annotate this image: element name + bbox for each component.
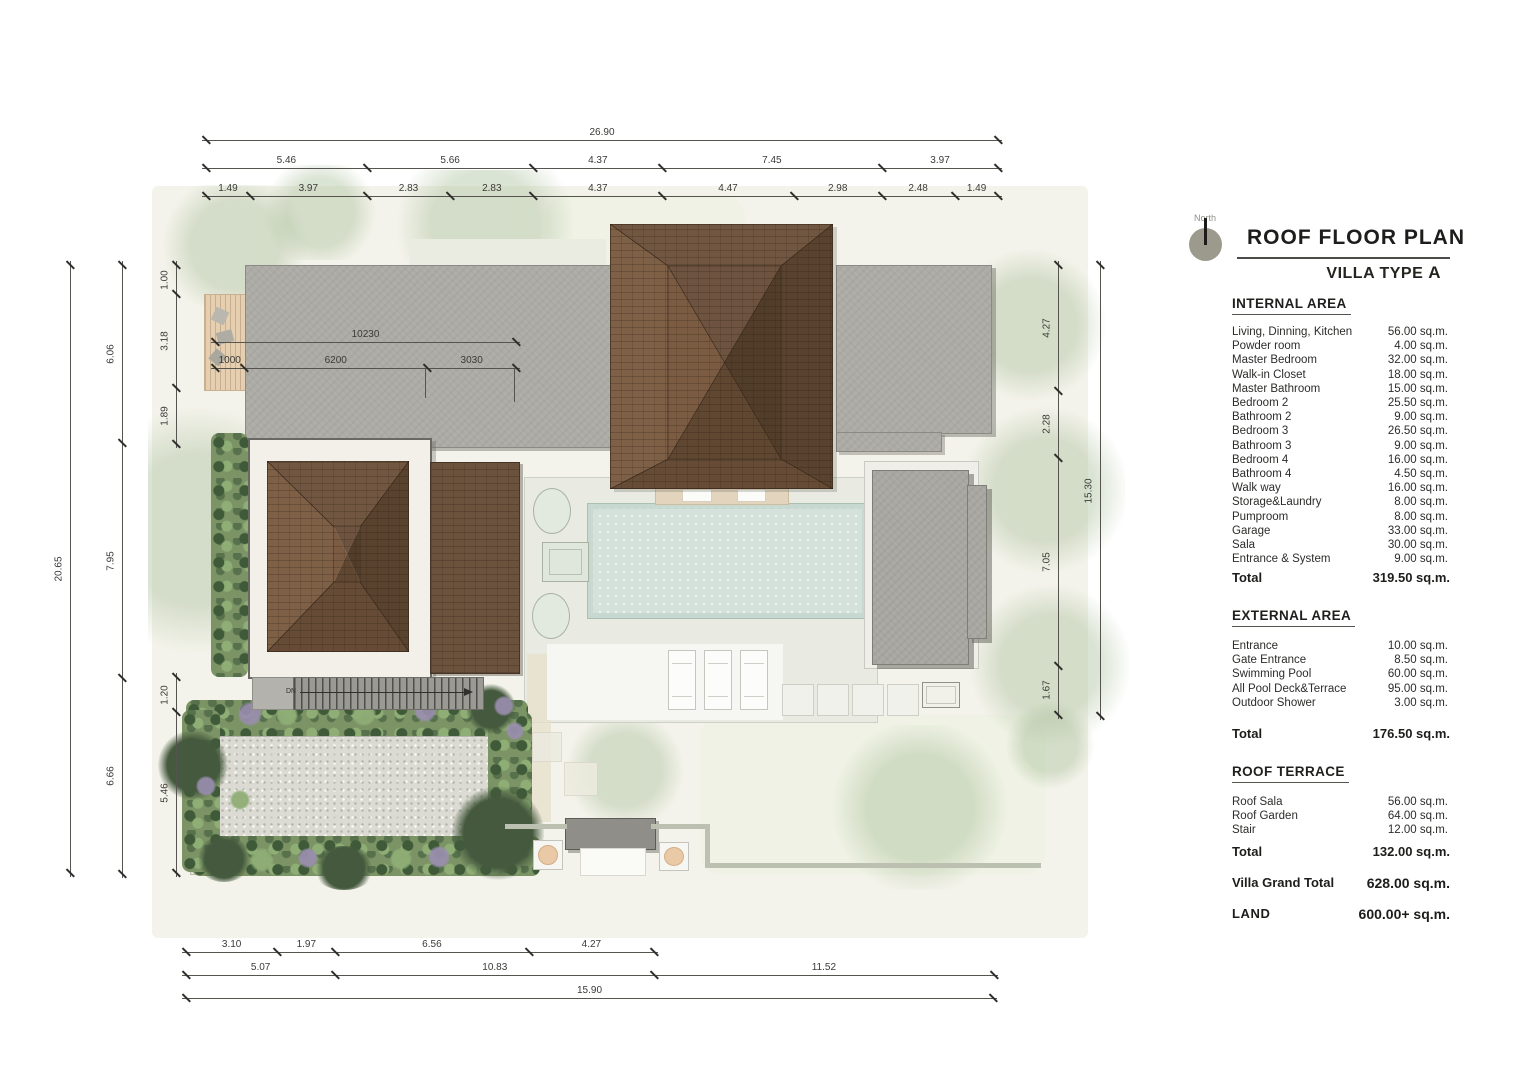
area-row-label: Outdoor Shower — [1232, 696, 1316, 710]
dimension-label: 2.28 — [1042, 415, 1053, 434]
dimension-label: 3.97 — [299, 183, 318, 194]
area-row: Entrance10.00 sq.m. — [1232, 639, 1448, 653]
north-needle-icon — [1204, 218, 1207, 245]
dimension-label: 4.27 — [582, 939, 601, 950]
dimension-line — [1100, 261, 1101, 720]
area-row: Stair12.00 sq.m. — [1232, 823, 1448, 837]
dimension-label: 2.83 — [399, 183, 418, 194]
roof-floor-plan-sheet: DN 26.905.465.664.377.453.971.493.972.83… — [0, 0, 1536, 1086]
dimension-label: 2.48 — [908, 183, 927, 194]
area-row-value: 26.50 sq.m. — [1388, 424, 1448, 438]
area-row-label: Roof Garden — [1232, 809, 1298, 823]
area-row-label: Roof Sala — [1232, 795, 1283, 809]
dimension-label: 10230 — [352, 329, 380, 340]
area-row-value: 56.00 sq.m. — [1388, 325, 1448, 339]
dimension-label: 1.97 — [297, 939, 316, 950]
dimension-line — [211, 368, 520, 369]
dimension-label: 1000 — [219, 355, 241, 366]
area-row-value: 9.00 sq.m. — [1394, 439, 1448, 453]
area-row-label: Stair — [1232, 823, 1256, 837]
dimension-label: 1.00 — [160, 270, 171, 289]
dimension-label: 1.89 — [160, 406, 171, 425]
area-row: Master Bathroom15.00 sq.m. — [1232, 382, 1448, 396]
area-row-value: 10.00 sq.m. — [1388, 639, 1448, 653]
area-row-value: 33.00 sq.m. — [1388, 524, 1448, 538]
area-row-label: Living, Dinning, Kitchen — [1232, 325, 1352, 339]
dimension-label: 2.98 — [828, 183, 847, 194]
dimension-label: 1.67 — [1042, 680, 1053, 699]
area-row-value: 60.00 sq.m. — [1388, 667, 1448, 681]
area-row: Bedroom 225.50 sq.m. — [1232, 396, 1448, 410]
area-row-label: Bathroom 3 — [1232, 439, 1291, 453]
dimension-label: 11.52 — [812, 962, 836, 973]
dimension-label: 7.45 — [762, 155, 781, 166]
external-area-rows: Entrance10.00 sq.m.Gate Entrance8.50 sq.… — [1232, 639, 1448, 710]
area-row: Master Bedroom32.00 sq.m. — [1232, 353, 1448, 367]
dimension-label: 1.49 — [218, 183, 237, 194]
area-row-label: Entrance & System — [1232, 552, 1330, 566]
area-row-value: 56.00 sq.m. — [1388, 795, 1448, 809]
area-row-label: Gate Entrance — [1232, 653, 1306, 667]
area-row-label: Entrance — [1232, 639, 1278, 653]
area-row-value: 16.00 sq.m. — [1388, 481, 1448, 495]
area-row-value: 3.00 sq.m. — [1394, 696, 1448, 710]
internal-area-heading: INTERNAL AREA — [1232, 296, 1351, 315]
area-row-value: 18.00 sq.m. — [1388, 368, 1448, 382]
internal-area-total: Total 319.50 sq.m. — [1232, 570, 1450, 585]
dimension-label: 4.47 — [718, 183, 737, 194]
area-row: Powder room4.00 sq.m. — [1232, 339, 1448, 353]
dimension-line — [176, 673, 177, 877]
dimension-label: 5.07 — [251, 962, 270, 973]
dimension-line — [211, 342, 520, 343]
dimension-label: 6.66 — [106, 766, 117, 785]
roof-terrace-heading: ROOF TERRACE — [1232, 764, 1349, 783]
area-row-label: Sala — [1232, 538, 1255, 552]
roof-terrace-total: Total 132.00 sq.m. — [1232, 844, 1450, 859]
area-row-label: Bedroom 4 — [1232, 453, 1288, 467]
dimension-line — [182, 975, 998, 976]
dimension-label: 3.97 — [930, 155, 949, 166]
dimension-label: 4.37 — [588, 155, 607, 166]
area-row-value: 64.00 sq.m. — [1388, 809, 1448, 823]
dimension-label: 1.49 — [967, 183, 986, 194]
area-row-label: Garage — [1232, 524, 1270, 538]
dimension-label: 7.95 — [106, 551, 117, 570]
area-row-label: Pumproom — [1232, 510, 1288, 524]
area-row: Pumproom8.00 sq.m. — [1232, 510, 1448, 524]
dimension-label: 5.46 — [277, 155, 296, 166]
area-row-label: Powder room — [1232, 339, 1300, 353]
area-row: Entrance & System9.00 sq.m. — [1232, 552, 1448, 566]
total-value: 176.50 sq.m. — [1373, 726, 1450, 741]
villa-type-prefix: VILLA TYPE — [1326, 265, 1428, 282]
dimension-label: 20.65 — [54, 556, 65, 581]
total-label: Total — [1232, 726, 1262, 741]
area-row: Bathroom 44.50 sq.m. — [1232, 467, 1448, 481]
area-row: Garage33.00 sq.m. — [1232, 524, 1448, 538]
area-row-value: 8.00 sq.m. — [1394, 495, 1448, 509]
dimension-label: 3.18 — [160, 332, 171, 351]
area-row-label: Walk way — [1232, 481, 1281, 495]
grand-total-value: 628.00 sq.m. — [1367, 875, 1450, 891]
total-label: Total — [1232, 844, 1262, 859]
area-row-label: Master Bedroom — [1232, 353, 1317, 367]
dimension-line — [182, 998, 997, 999]
dimension-label: 3.10 — [222, 939, 241, 950]
dimension-label: 26.90 — [589, 127, 614, 138]
area-row: Sala30.00 sq.m. — [1232, 538, 1448, 552]
dimension-label: 5.66 — [440, 155, 459, 166]
villa-type-letter: A — [1428, 263, 1441, 282]
dimension-label: 7.05 — [1042, 552, 1053, 571]
dimension-line — [176, 261, 177, 448]
title-underline — [1237, 257, 1450, 259]
land-row: LAND 600.00+ sq.m. — [1232, 906, 1450, 922]
dimension-label: 5.46 — [160, 783, 171, 802]
area-row-value: 4.50 sq.m. — [1394, 467, 1448, 481]
dimension-label: 4.37 — [588, 183, 607, 194]
area-row-label: Master Bathroom — [1232, 382, 1320, 396]
dimension-label: 1.20 — [160, 685, 171, 704]
area-row-value: 8.50 sq.m. — [1394, 653, 1448, 667]
area-row-label: Bedroom 2 — [1232, 396, 1288, 410]
external-area-heading: EXTERNAL AREA — [1232, 608, 1355, 627]
land-label: LAND — [1232, 906, 1271, 922]
area-row: Walk way16.00 sq.m. — [1232, 481, 1448, 495]
area-row: Walk-in Closet18.00 sq.m. — [1232, 368, 1448, 382]
area-row: Roof Garden64.00 sq.m. — [1232, 809, 1448, 823]
area-row: Swimming Pool60.00 sq.m. — [1232, 667, 1448, 681]
area-row: Living, Dinning, Kitchen56.00 sq.m. — [1232, 325, 1448, 339]
dimension-line — [1058, 261, 1059, 719]
area-row: Bathroom 39.00 sq.m. — [1232, 439, 1448, 453]
area-row-value: 16.00 sq.m. — [1388, 453, 1448, 467]
area-row: Bathroom 29.00 sq.m. — [1232, 410, 1448, 424]
area-row-value: 25.50 sq.m. — [1388, 396, 1448, 410]
dimension-label: 15.30 — [1084, 478, 1095, 503]
area-row: All Pool Deck&Terrace95.00 sq.m. — [1232, 682, 1448, 696]
area-row-label: Bedroom 3 — [1232, 424, 1288, 438]
total-value: 132.00 sq.m. — [1373, 844, 1450, 859]
dimension-label: 6.06 — [106, 344, 117, 363]
total-label: Total — [1232, 570, 1262, 585]
area-row: Outdoor Shower3.00 sq.m. — [1232, 696, 1448, 710]
area-row-value: 4.00 sq.m. — [1394, 339, 1448, 353]
area-row: Gate Entrance8.50 sq.m. — [1232, 653, 1448, 667]
dimension-label: 10.83 — [482, 962, 507, 973]
area-row-value: 15.00 sq.m. — [1388, 382, 1448, 396]
area-row-value: 8.00 sq.m. — [1394, 510, 1448, 524]
area-row-value: 30.00 sq.m. — [1388, 538, 1448, 552]
roof-terrace-rows: Roof Sala56.00 sq.m.Roof Garden64.00 sq.… — [1232, 795, 1448, 838]
dimension-label: 3030 — [461, 355, 483, 366]
area-row-label: Storage&Laundry — [1232, 495, 1322, 509]
total-value: 319.50 sq.m. — [1373, 570, 1450, 585]
dimension-label: 4.27 — [1042, 318, 1053, 337]
grand-total-label: Villa Grand Total — [1232, 875, 1334, 891]
dimension-line — [202, 140, 1002, 141]
area-row-value: 95.00 sq.m. — [1388, 682, 1448, 696]
villa-type: VILLA TYPE A — [1237, 263, 1441, 283]
land-value: 600.00+ sq.m. — [1359, 906, 1450, 922]
area-row: Bedroom 326.50 sq.m. — [1232, 424, 1448, 438]
area-row-label: Bathroom 2 — [1232, 410, 1291, 424]
dimension-line — [122, 261, 123, 878]
area-row-value: 32.00 sq.m. — [1388, 353, 1448, 367]
area-row-value: 12.00 sq.m. — [1388, 823, 1448, 837]
villa-grand-total: Villa Grand Total 628.00 sq.m. — [1232, 875, 1450, 891]
dimension-label: 6200 — [325, 355, 347, 366]
area-row: Bedroom 416.00 sq.m. — [1232, 453, 1448, 467]
area-row: Roof Sala56.00 sq.m. — [1232, 795, 1448, 809]
dimension-label: 2.83 — [482, 183, 501, 194]
area-row-label: Bathroom 4 — [1232, 467, 1291, 481]
dimension-label: 6.56 — [422, 939, 441, 950]
drawing-title: ROOF FLOOR PLAN — [1247, 226, 1465, 250]
area-row-label: Walk-in Closet — [1232, 368, 1306, 382]
dimension-line — [182, 952, 658, 953]
internal-area-rows: Living, Dinning, Kitchen56.00 sq.m.Powde… — [1232, 325, 1448, 566]
area-row: Storage&Laundry8.00 sq.m. — [1232, 495, 1448, 509]
area-row-value: 9.00 sq.m. — [1394, 552, 1448, 566]
area-row-value: 9.00 sq.m. — [1394, 410, 1448, 424]
area-row-label: Swimming Pool — [1232, 667, 1311, 681]
external-area-total: Total 176.50 sq.m. — [1232, 726, 1450, 741]
dimension-line — [70, 261, 71, 877]
area-row-label: All Pool Deck&Terrace — [1232, 682, 1346, 696]
dimension-label: 15.90 — [577, 985, 602, 996]
